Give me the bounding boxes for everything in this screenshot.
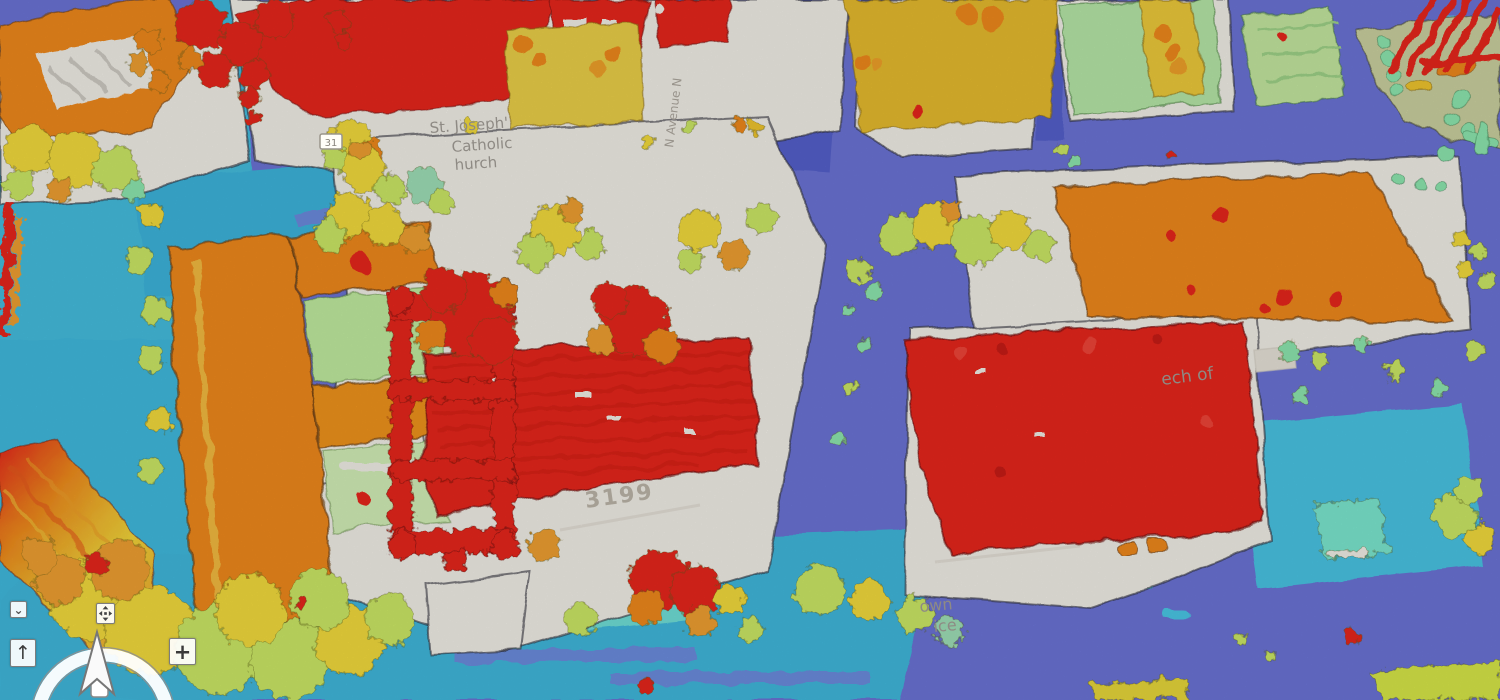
lidar-map-canvas: 31 St. Joseph' Catholic hurch N Avenue N… <box>0 0 1500 700</box>
pan-arrows-icon <box>98 605 113 622</box>
point-cloud-grain <box>0 0 1500 700</box>
road-shield: 31 <box>320 134 342 149</box>
map-viewport[interactable]: 31 St. Joseph' Catholic hurch N Avenue N… <box>0 0 1500 700</box>
chevron-down-icon: ⌄ <box>13 603 23 617</box>
corner-label-line2: ice <box>933 615 958 636</box>
arrow-up-icon: ↑ <box>15 642 31 664</box>
plus-icon: + <box>174 640 192 664</box>
pan-up-button[interactable]: ↑ <box>10 639 36 667</box>
pan-mode-button[interactable] <box>96 603 115 624</box>
collapse-controls-button[interactable]: ⌄ <box>10 601 27 618</box>
church-label-line3: hurch <box>454 153 498 174</box>
zoom-in-button[interactable]: + <box>169 638 196 665</box>
road-shield-number: 31 <box>325 138 338 149</box>
corner-label-line1: own <box>919 594 954 616</box>
